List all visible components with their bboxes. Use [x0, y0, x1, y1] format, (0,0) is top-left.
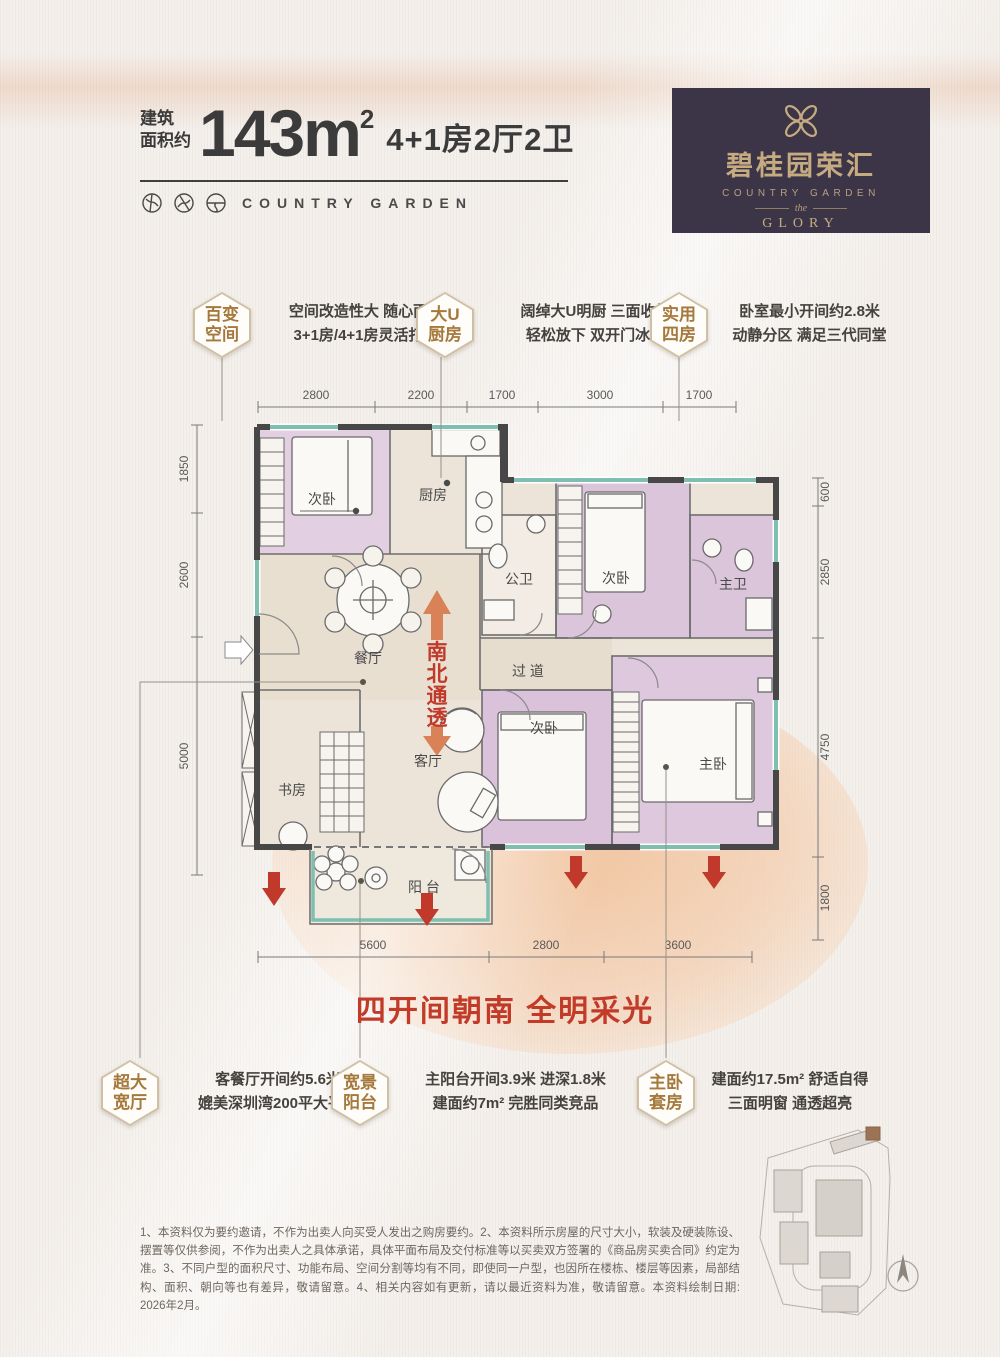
svg-text:北: 北: [427, 663, 448, 686]
label-bed1: 次卧: [308, 491, 336, 507]
glory-rule: the: [755, 203, 847, 214]
svg-text:1850: 1850: [177, 455, 191, 482]
floorplan-drawing: 南 北 通 透 次卧 厨房 公卫 次卧 主卫 餐厅 过 道 客厅 书房 次卧 主…: [125, 365, 875, 980]
label-study: 书房: [278, 782, 306, 798]
feature-badge-wide-hall: 超大宽厅: [101, 1060, 159, 1126]
svg-text:1800: 1800: [818, 884, 832, 911]
svg-text:2200: 2200: [408, 388, 435, 402]
project-name-en: COUNTRY GARDEN: [722, 188, 880, 199]
svg-text:5000: 5000: [177, 742, 191, 769]
svg-text:2800: 2800: [533, 938, 560, 952]
layout-summary: 4+1房2厅2卫: [386, 114, 574, 163]
svg-text:4750: 4750: [818, 733, 832, 760]
clover-knot-icon: [779, 100, 823, 142]
brand-row: COUNTRY GARDEN: [140, 191, 473, 215]
south-facing-banner: 四开间朝南 全明采光: [290, 986, 720, 1030]
header-area-block: 建筑 面积约 143m2 4+1房2厅2卫: [140, 104, 574, 163]
area-value: 143m2: [199, 104, 374, 163]
label-dining: 餐厅: [354, 650, 382, 666]
feature-desc-balcony: 主阳台开间3.9米 进深1.8米建面约7m² 完胜同类竞品: [393, 1068, 638, 1116]
feature-badge-u-kitchen: 大U厨房: [416, 292, 474, 358]
feature-badge-four-rooms: 实用四房: [650, 292, 708, 358]
project-name-cn: 碧桂园荣汇: [726, 144, 876, 183]
site-plan-map: [738, 1118, 938, 1333]
svg-text:5600: 5600: [360, 938, 387, 952]
svg-text:3000: 3000: [587, 388, 614, 402]
label-kitchen: 厨房: [419, 487, 447, 503]
svg-text:南: 南: [427, 640, 448, 664]
legal-disclaimer: 1、本资料仅为要约邀请，不作为出卖人向买受人发出之购房要约。2、本资料所示房屋的…: [140, 1224, 740, 1316]
svg-text:透: 透: [427, 707, 449, 730]
highlighted-building: [866, 1127, 880, 1140]
feature-badge-master-suite: 主卧套房: [637, 1060, 695, 1126]
feature-badge-flex-space: 百变空间: [193, 292, 251, 358]
label-master: 主卧: [699, 756, 727, 772]
feature-desc-four-rooms: 卧室最小开间约2.8米动静分区 满足三代同堂: [702, 300, 917, 348]
label-balcony: 阳 台: [408, 879, 440, 895]
label-master-bath: 主卫: [719, 576, 747, 592]
area-label: 建筑 面积约: [140, 108, 191, 164]
svg-text:2800: 2800: [303, 388, 330, 402]
feature-badge-balcony: 宽景阳台: [331, 1060, 389, 1126]
entry-arrow-icon: [225, 636, 253, 664]
label-hallway: 过 道: [512, 663, 544, 679]
label-bed2: 次卧: [602, 570, 630, 586]
svg-text:600: 600: [818, 482, 832, 502]
svg-text:通: 通: [427, 685, 448, 708]
orientation-text: 南 北 通 透: [427, 640, 449, 730]
project-subname-en: GLORY: [762, 216, 839, 232]
svg-text:1700: 1700: [489, 388, 516, 402]
project-logo-box: 碧桂园荣汇 COUNTRY GARDEN the GLORY: [672, 88, 930, 233]
brand-name-en: COUNTRY GARDEN: [242, 195, 473, 211]
label-bed3: 次卧: [530, 720, 558, 736]
feature-desc-master-suite: 建面约17.5m² 舒适自得三面明窗 通透超亮: [695, 1068, 885, 1116]
label-pub-bath: 公卫: [505, 571, 533, 587]
floorplan-flyer-page: 建筑 面积约 143m2 4+1房2厅2卫 COUNTRY GARDEN: [0, 0, 1000, 1357]
svg-text:1700: 1700: [686, 388, 713, 402]
compass-icon: [888, 1254, 918, 1291]
brand-logo-icons: [140, 191, 232, 215]
svg-text:2850: 2850: [818, 558, 832, 585]
svg-text:3600: 3600: [665, 938, 692, 952]
header-divider: [140, 180, 568, 182]
label-living: 客厅: [414, 753, 442, 769]
svg-text:2600: 2600: [177, 561, 191, 588]
